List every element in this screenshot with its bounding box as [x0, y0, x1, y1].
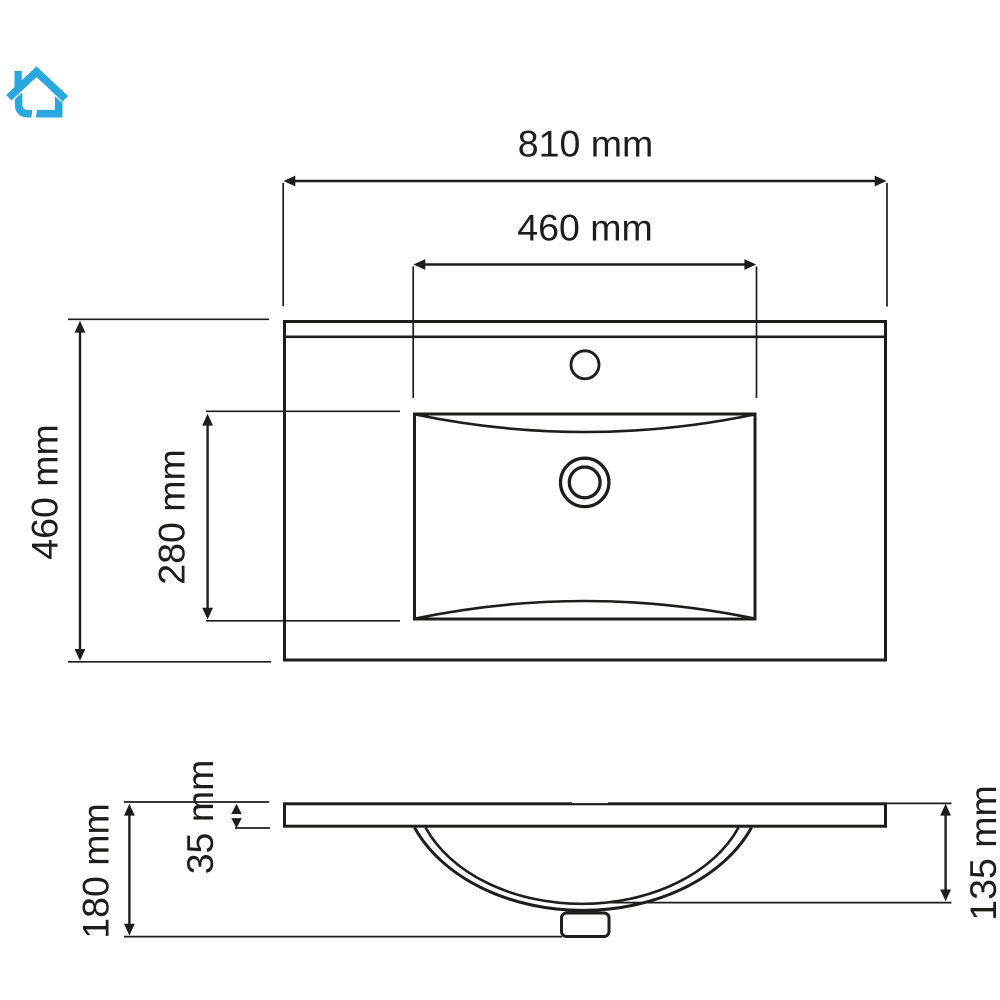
svg-text:810 mm: 810 mm — [518, 123, 653, 165]
svg-text:460 mm: 460 mm — [24, 424, 66, 559]
svg-text:180 mm: 180 mm — [75, 803, 117, 938]
svg-text:35 mm: 35 mm — [179, 760, 221, 875]
svg-text:135 mm: 135 mm — [962, 785, 1000, 920]
svg-text:280 mm: 280 mm — [151, 449, 193, 584]
svg-text:460 mm: 460 mm — [517, 207, 652, 249]
